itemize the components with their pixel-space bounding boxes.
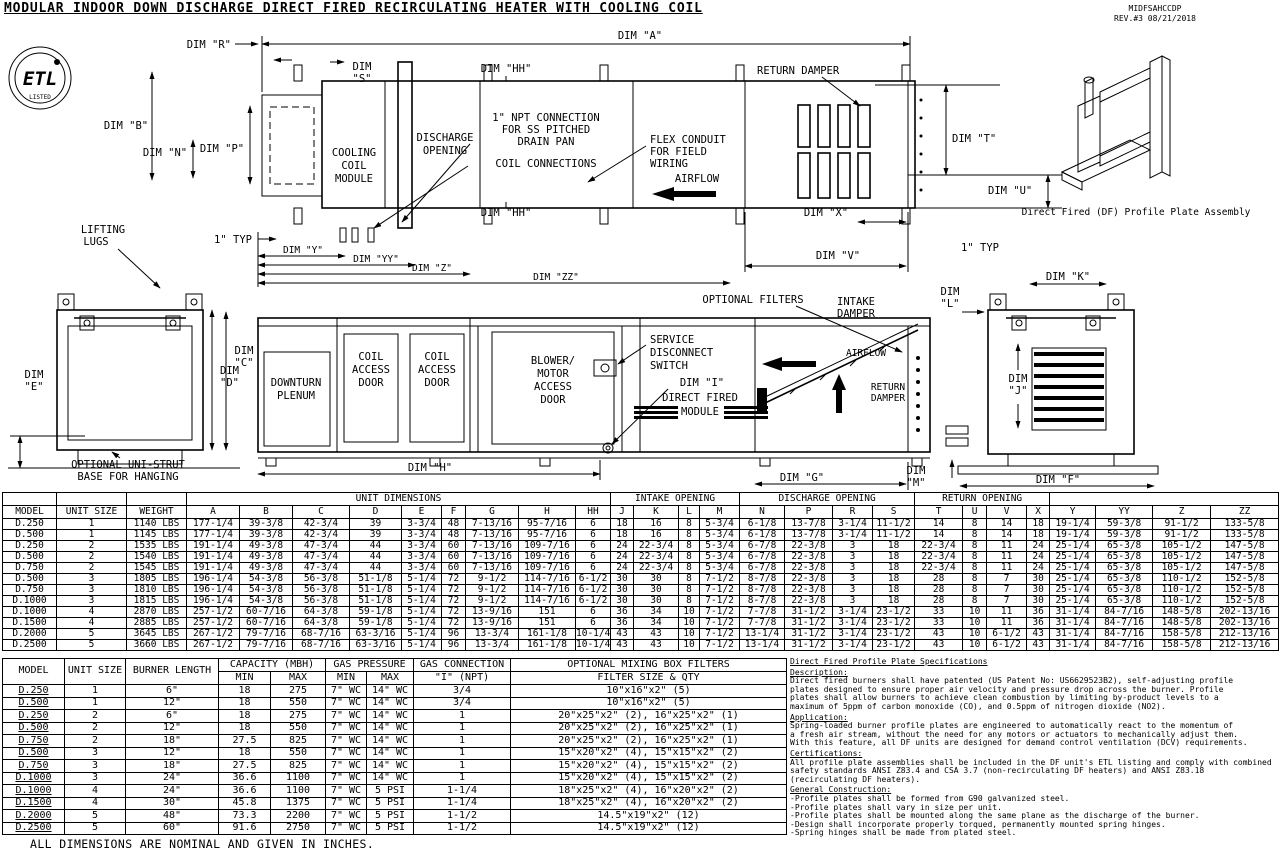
left-end-view: DIM "E" DIM "D" OPTIONAL UNI-STRUT BASE … xyxy=(8,294,240,483)
column-header: X xyxy=(1027,506,1050,519)
cell: 72 xyxy=(442,585,466,596)
cell: 114-7/16 xyxy=(519,585,576,596)
cell: 7-1/2 xyxy=(700,629,740,640)
group-header-intake-opening: INTAKE OPENING xyxy=(611,493,740,506)
table-row: D.1000424"36.611007" WC5 PSI1-1/418"x25"… xyxy=(3,785,787,798)
cell: 79-7/16 xyxy=(240,629,293,640)
cell: 5-3/4 xyxy=(700,552,740,563)
cell: 6 xyxy=(576,607,611,618)
cell: 7" WC xyxy=(326,710,367,723)
cell: 4 xyxy=(65,785,126,798)
cell: 44 xyxy=(350,552,402,563)
cell: 91.6 xyxy=(219,822,271,835)
spec-text-line: With this feature, all DF units are desi… xyxy=(790,739,1278,748)
table-row: D.500312"185507" WC14" WC115"x20"x2" (4)… xyxy=(3,747,787,760)
cell: 48 xyxy=(442,519,466,530)
cell: 30 xyxy=(634,596,679,607)
cell: 6-1/2 xyxy=(576,596,611,607)
cell: 25-1/4 xyxy=(1050,563,1096,574)
cell: 22-3/8 xyxy=(785,574,833,585)
table-row: D.75031810 LBS196-1/454-3/856-3/851-1/85… xyxy=(3,585,1279,596)
cell: D.1000 xyxy=(3,785,65,798)
cell: 11 xyxy=(987,618,1027,629)
cell: 84-7/16 xyxy=(1096,607,1153,618)
cell: 15"x20"x2" (4), 15"x15"x2" (2) xyxy=(511,772,787,785)
cell: 25-1/4 xyxy=(1050,596,1096,607)
cell: 158-5/8 xyxy=(1153,629,1211,640)
cell: 31-1/2 xyxy=(785,629,833,640)
cell: 5 PSI xyxy=(367,797,414,810)
group-header-discharge-opening: DISCHARGE OPENING xyxy=(740,493,915,506)
cell: 177-1/4 xyxy=(187,530,240,541)
cell: 3-3/4 xyxy=(402,552,442,563)
cell: 14" WC xyxy=(367,760,414,773)
cell: 7-13/16 xyxy=(466,541,519,552)
return-damper-label-plan: RETURN DAMPER xyxy=(757,65,840,77)
table-row: D.150042885 LBS257-1/260-7/1664-3/859-1/… xyxy=(3,618,1279,629)
spec-text-line: maximum of 5ppm of carbon monoxide (CO),… xyxy=(790,703,1278,712)
cell: 51-1/8 xyxy=(350,585,402,596)
cell: 1535 LBS xyxy=(127,541,187,552)
cell: 6-1/2 xyxy=(987,629,1027,640)
dim-b-label: DIM "B" xyxy=(104,120,148,132)
table-row: D.500112"185507" WC14" WC3/410"x16"x2" (… xyxy=(3,697,787,710)
dim-v-label: DIM "V" xyxy=(816,250,860,262)
cell: 25-1/4 xyxy=(1050,574,1096,585)
cell: 1805 LBS xyxy=(127,574,187,585)
cell: 39 xyxy=(350,519,402,530)
cell: 8 xyxy=(963,541,987,552)
column-header: ZZ xyxy=(1211,506,1279,519)
burner-capacity-table-wrap: MODEL UNIT SIZE BURNER LENGTH CAPACITY (… xyxy=(2,658,787,835)
cell: D.500 xyxy=(3,552,57,563)
cell: D.500 xyxy=(3,574,57,585)
cell: D.2000 xyxy=(3,629,57,640)
cell: 6 xyxy=(576,541,611,552)
cell: 14.5"x19"x2" (12) xyxy=(511,822,787,835)
table-row: D.2000548"73.322007" WC5 PSI1-1/214.5"x1… xyxy=(3,810,787,823)
cell: 1 xyxy=(414,772,511,785)
cell: 30 xyxy=(1027,574,1050,585)
cell: 1815 LBS xyxy=(127,596,187,607)
cell: 43 xyxy=(1027,640,1050,651)
cell: 18 xyxy=(219,685,271,698)
cell: 10-1/4 xyxy=(576,629,611,640)
cell: 25-1/4 xyxy=(1050,552,1096,563)
cell: 3 xyxy=(57,596,127,607)
cell: 3 xyxy=(65,772,126,785)
intake-damper-label: INTAKE xyxy=(837,296,875,308)
direct-fired-module-label: DIRECT FIRED xyxy=(662,392,738,404)
cell: 20"x25"x2" (2), 16"x25"x2" (1) xyxy=(511,722,787,735)
cell: 65-3/8 xyxy=(1096,552,1153,563)
column-header: D xyxy=(350,506,402,519)
header-model: MODEL xyxy=(3,659,65,685)
coil-connections-label: COIL CONNECTIONS xyxy=(495,158,596,170)
cell: 105-1/2 xyxy=(1153,552,1211,563)
svg-text:FOR FIELD: FOR FIELD xyxy=(650,146,707,158)
cell: 30 xyxy=(1027,585,1050,596)
cell: D.2500 xyxy=(3,640,57,651)
right-end-view: DIM "K" DIM "L" DIM "J" DIM "M" DIM "F" xyxy=(907,271,1158,489)
cell: 2885 LBS xyxy=(127,618,187,629)
cell: 3 xyxy=(833,596,873,607)
cell: 7-13/16 xyxy=(466,563,519,574)
cell: D.1000 xyxy=(3,772,65,785)
cell: 212-13/16 xyxy=(1211,640,1279,651)
cell: 20"x25"x2" (2), 16"x25"x2" (1) xyxy=(511,735,787,748)
cell: D.500 xyxy=(3,747,65,760)
dim-a-label: DIM "A" xyxy=(618,30,662,42)
cell: 4 xyxy=(57,607,127,618)
cell: 10 xyxy=(963,629,987,640)
cell: 2 xyxy=(57,563,127,574)
table-row: D.200053645 LBS267-1/279-7/1668-7/1663-3… xyxy=(3,629,1279,640)
cell: 12" xyxy=(126,697,219,710)
cell: 14 xyxy=(915,530,963,541)
cell: 22-3/4 xyxy=(915,563,963,574)
cell: 18 xyxy=(873,585,915,596)
cell: 23-1/2 xyxy=(873,618,915,629)
unit-dimensions-table: UNIT DIMENSIONS INTAKE OPENING DISCHARGE… xyxy=(2,492,1279,651)
column-header: S xyxy=(873,506,915,519)
column-header: HH xyxy=(576,506,611,519)
column-header: MODEL xyxy=(3,506,57,519)
svg-text:ACCESS: ACCESS xyxy=(418,364,456,376)
cell: 202-13/16 xyxy=(1211,607,1279,618)
plan-view: DIM "A" DIM "R" xyxy=(81,30,1062,288)
etl-mark: ETL xyxy=(23,68,57,90)
cell: 3-1/4 xyxy=(833,519,873,530)
cell: 10 xyxy=(679,618,700,629)
cell: 8 xyxy=(963,552,987,563)
cell: D.250 xyxy=(3,710,65,723)
spec-text-line: (recirculating DF heaters). xyxy=(790,776,1278,785)
cell: 18 xyxy=(611,519,634,530)
cell: 18"x25"x2" (4), 16"x20"x2" (2) xyxy=(511,785,787,798)
cell: 10 xyxy=(679,607,700,618)
header-filter-size-qty: FILTER SIZE & QTY xyxy=(511,672,787,685)
cell: 7 xyxy=(987,574,1027,585)
cell: 3 xyxy=(57,574,127,585)
dim-z-label: DIM "Z" xyxy=(412,263,452,274)
cell: 1-1/4 xyxy=(414,785,511,798)
svg-text:ACCESS: ACCESS xyxy=(534,381,572,393)
cell: 24 xyxy=(611,541,634,552)
cell: 5-1/4 xyxy=(402,585,442,596)
cell: 22-3/4 xyxy=(634,563,679,574)
cell: 1 xyxy=(414,710,511,723)
cell: 95-7/16 xyxy=(519,530,576,541)
specs-sections: Description:Direct fired burners shall h… xyxy=(790,669,1278,838)
cell: 8 xyxy=(963,519,987,530)
uni-strut-label: OPTIONAL UNI-STRUT xyxy=(71,459,185,471)
svg-text:DOOR: DOOR xyxy=(540,394,566,406)
cell: 1 xyxy=(57,530,127,541)
cell: 10 xyxy=(963,618,987,629)
cell: 65-3/8 xyxy=(1096,574,1153,585)
column-header: N xyxy=(740,506,785,519)
cell: 133-5/8 xyxy=(1211,530,1279,541)
cell: 22-3/8 xyxy=(785,552,833,563)
table-row: D.50011145 LBS177-1/439-3/842-3/4393-3/4… xyxy=(3,530,1279,541)
iso-caption: Direct Fired (DF) Profile Plate Assembly xyxy=(1022,207,1251,218)
column-header: J xyxy=(611,506,634,519)
cell: 1 xyxy=(414,747,511,760)
cell: 5-1/4 xyxy=(402,574,442,585)
svg-text:MOTOR: MOTOR xyxy=(537,368,569,380)
cell: 14" WC xyxy=(367,722,414,735)
cell: 196-1/4 xyxy=(187,585,240,596)
cell: 105-1/2 xyxy=(1153,563,1211,574)
dim-r-label: DIM "R" xyxy=(187,39,231,51)
cell: 42-3/4 xyxy=(293,530,350,541)
cell: 72 xyxy=(442,596,466,607)
cell: 3 xyxy=(833,574,873,585)
cell: 42-3/4 xyxy=(293,519,350,530)
cell: 550 xyxy=(271,697,326,710)
cell: 63-3/16 xyxy=(350,640,402,651)
table-row: D.25011140 LBS177-1/439-3/842-3/4393-3/4… xyxy=(3,519,1279,530)
cell: 30 xyxy=(634,574,679,585)
cell: 3-1/4 xyxy=(833,629,873,640)
return-damper-grille xyxy=(798,105,870,198)
cell: D.1000 xyxy=(3,596,57,607)
cell: 109-7/16 xyxy=(519,563,576,574)
cell: 19-1/4 xyxy=(1050,530,1096,541)
svg-text:FOR SS PITCHED: FOR SS PITCHED xyxy=(502,124,591,136)
dim-l-label: DIM xyxy=(941,286,960,298)
cell: 5-3/4 xyxy=(700,519,740,530)
cell: 3 xyxy=(833,585,873,596)
cell: 16 xyxy=(634,519,679,530)
svg-text:PLENUM: PLENUM xyxy=(277,390,315,402)
table-row: D.25026"182757" WC14" WC120"x25"x2" (2),… xyxy=(3,710,787,723)
cell: 49-3/8 xyxy=(240,552,293,563)
cell: 2 xyxy=(57,552,127,563)
header-pressure-max: MAX xyxy=(367,672,414,685)
cell: 1140 LBS xyxy=(127,519,187,530)
cell: 10 xyxy=(963,607,987,618)
cell: 1 xyxy=(65,697,126,710)
cell: 7-7/8 xyxy=(740,607,785,618)
cell: 3-3/4 xyxy=(402,563,442,574)
cell: 5-1/4 xyxy=(402,618,442,629)
cell: 18" xyxy=(126,760,219,773)
cell: 65-3/8 xyxy=(1096,585,1153,596)
svg-text:DRAIN PAN: DRAIN PAN xyxy=(518,136,575,148)
flex-conduit-label: FLEX CONDUIT xyxy=(650,134,727,146)
cell: 30 xyxy=(1027,596,1050,607)
cell: 36.6 xyxy=(219,785,271,798)
iso-profile-plate-view: Direct Fired (DF) Profile Plate Assembly xyxy=(1022,56,1251,218)
cell: 72 xyxy=(442,574,466,585)
cell: 147-5/8 xyxy=(1211,563,1279,574)
cell: 59-1/8 xyxy=(350,607,402,618)
specs-title: Direct Fired Profile Plate Specification… xyxy=(790,658,1278,667)
cell: 110-1/2 xyxy=(1153,585,1211,596)
cell: 3 xyxy=(65,760,126,773)
cell: 56-3/8 xyxy=(293,596,350,607)
cell: 109-7/16 xyxy=(519,552,576,563)
cell: 91-1/2 xyxy=(1153,519,1211,530)
cell: 8 xyxy=(963,574,987,585)
svg-text:DAMPER: DAMPER xyxy=(871,393,906,404)
cell: 7-1/2 xyxy=(700,640,740,651)
cell: 7" WC xyxy=(326,797,367,810)
cell: 3 xyxy=(833,552,873,563)
header-burner-length: BURNER LENGTH xyxy=(126,659,219,685)
cell: 27.5 xyxy=(219,735,271,748)
column-header: Z xyxy=(1153,506,1211,519)
svg-text:MODULE: MODULE xyxy=(335,173,373,185)
cell: 20"x25"x2" (2), 16"x25"x2" (1) xyxy=(511,710,787,723)
cell: 7" WC xyxy=(326,810,367,823)
cell: 14" WC xyxy=(367,747,414,760)
cell: 267-1/2 xyxy=(187,640,240,651)
svg-text:"D": "D" xyxy=(220,377,239,389)
cell: 39-3/8 xyxy=(240,519,293,530)
up-arrow-icon xyxy=(832,374,846,413)
cell: 11-1/2 xyxy=(873,519,915,530)
svg-text:"J": "J" xyxy=(1009,385,1028,397)
cell: 550 xyxy=(271,722,326,735)
cell: 1545 LBS xyxy=(127,563,187,574)
table-row: D.25016"182757" WC14" WC3/410"x16"x2" (5… xyxy=(3,685,787,698)
cell: 65-3/8 xyxy=(1096,563,1153,574)
cell: 3660 LBS xyxy=(127,640,187,651)
cell: 110-1/2 xyxy=(1153,596,1211,607)
cell: 7-1/2 xyxy=(700,607,740,618)
cell: 13-1/4 xyxy=(740,629,785,640)
cell: 11 xyxy=(987,552,1027,563)
cell: 202-13/16 xyxy=(1211,618,1279,629)
cell: 6-1/2 xyxy=(987,640,1027,651)
column-header: V xyxy=(987,506,1027,519)
cell: 24 xyxy=(611,563,634,574)
cell: 18 xyxy=(873,552,915,563)
cell: 60 xyxy=(442,541,466,552)
cell: 7-13/16 xyxy=(466,530,519,541)
cell: 31-1/4 xyxy=(1050,640,1096,651)
table-row: D.50031805 LBS196-1/454-3/856-3/851-1/85… xyxy=(3,574,1279,585)
cell: 3 xyxy=(833,541,873,552)
cell: 114-7/16 xyxy=(519,596,576,607)
cell: 133-5/8 xyxy=(1211,519,1279,530)
column-header: P xyxy=(785,506,833,519)
cell: 31-1/2 xyxy=(785,618,833,629)
cell: 5-3/4 xyxy=(700,563,740,574)
cell: 14" WC xyxy=(367,735,414,748)
technical-drawing: ETL LISTED DIM "A" DIM "R" xyxy=(0,22,1280,494)
cell: 6" xyxy=(126,685,219,698)
cell: 3/4 xyxy=(414,685,511,698)
header-unit-size: UNIT SIZE xyxy=(65,659,126,685)
cell: 31-1/4 xyxy=(1050,629,1096,640)
cell: 65-3/8 xyxy=(1096,541,1153,552)
cell: 15"x20"x2" (4), 15"x15"x2" (2) xyxy=(511,760,787,773)
cell: 1-1/2 xyxy=(414,810,511,823)
cell: 6 xyxy=(576,530,611,541)
cell: 2 xyxy=(57,541,127,552)
dim-j-label: DIM xyxy=(1009,373,1028,385)
cell: 19-1/4 xyxy=(1050,519,1096,530)
cell: 10 xyxy=(963,640,987,651)
cell: 6 xyxy=(576,618,611,629)
cell: 10"x16"x2" (5) xyxy=(511,697,787,710)
cell: 2 xyxy=(65,710,126,723)
coil-access-door-1-label: COIL xyxy=(358,351,383,363)
cell: 7 xyxy=(987,596,1027,607)
cell: 13-7/8 xyxy=(785,519,833,530)
cell: 34 xyxy=(634,618,679,629)
cell: 2870 LBS xyxy=(127,607,187,618)
service-disconnect-label: SERVICE xyxy=(650,334,694,346)
cell: 30 xyxy=(634,585,679,596)
cell: 79-7/16 xyxy=(240,640,293,651)
optional-filters-label: OPTIONAL FILTERS xyxy=(702,294,803,306)
cell: 7" WC xyxy=(326,760,367,773)
cell: 18 xyxy=(1027,519,1050,530)
cell: 14" WC xyxy=(367,685,414,698)
cell: 7" WC xyxy=(326,697,367,710)
cell: 161-1/8 xyxy=(519,629,576,640)
npt-connection-label: 1" NPT CONNECTION xyxy=(492,112,599,124)
dim-p-label: DIM "P" xyxy=(200,143,244,155)
return-damper-side-label: RETURN xyxy=(871,382,906,393)
cell: D.2500 xyxy=(3,822,65,835)
downturn-plenum-label: DOWNTURN xyxy=(271,377,322,389)
svg-text:MODULE: MODULE xyxy=(681,406,719,418)
cell: 36 xyxy=(1027,618,1050,629)
cell: 3-3/4 xyxy=(402,541,442,552)
table-row: D.250053660 LBS267-1/279-7/1668-7/1663-3… xyxy=(3,640,1279,651)
cell: 28 xyxy=(915,585,963,596)
cell: 6-1/2 xyxy=(576,585,611,596)
cell: D.500 xyxy=(3,530,57,541)
cell: 43 xyxy=(915,629,963,640)
cell: 7-13/16 xyxy=(466,519,519,530)
cell: 3-1/4 xyxy=(833,618,873,629)
cell: 18 xyxy=(873,574,915,585)
cell: 25-1/4 xyxy=(1050,541,1096,552)
profile-plate-specifications: Direct Fired Profile Plate Specification… xyxy=(790,658,1278,848)
cell: 18"x25"x2" (4), 16"x20"x2" (2) xyxy=(511,797,787,810)
cell: 68-7/16 xyxy=(293,640,350,651)
etl-listed-label: LISTED xyxy=(29,94,51,101)
cell: 3 xyxy=(833,563,873,574)
header-gas-connection-npt: "I" (NPT) xyxy=(414,672,511,685)
column-header: T xyxy=(915,506,963,519)
cell: 3-1/4 xyxy=(833,640,873,651)
cell: 5-1/4 xyxy=(402,629,442,640)
cell: 8 xyxy=(679,530,700,541)
cell: 23-1/2 xyxy=(873,629,915,640)
cell: 14 xyxy=(987,530,1027,541)
cell: 44 xyxy=(350,541,402,552)
cell: 9-1/2 xyxy=(466,596,519,607)
cell: 36 xyxy=(1027,607,1050,618)
cell: 36.6 xyxy=(219,772,271,785)
dim-yy-label: DIM "YY" xyxy=(353,254,399,265)
empty-header-cell xyxy=(3,493,57,506)
cell: 18 xyxy=(873,541,915,552)
table-row: D.500212"185507" WC14" WC120"x25"x2" (2)… xyxy=(3,722,787,735)
cell: 5 xyxy=(65,810,126,823)
cell: 3/4 xyxy=(414,697,511,710)
cell: 110-1/2 xyxy=(1153,574,1211,585)
cell: 212-13/16 xyxy=(1211,629,1279,640)
